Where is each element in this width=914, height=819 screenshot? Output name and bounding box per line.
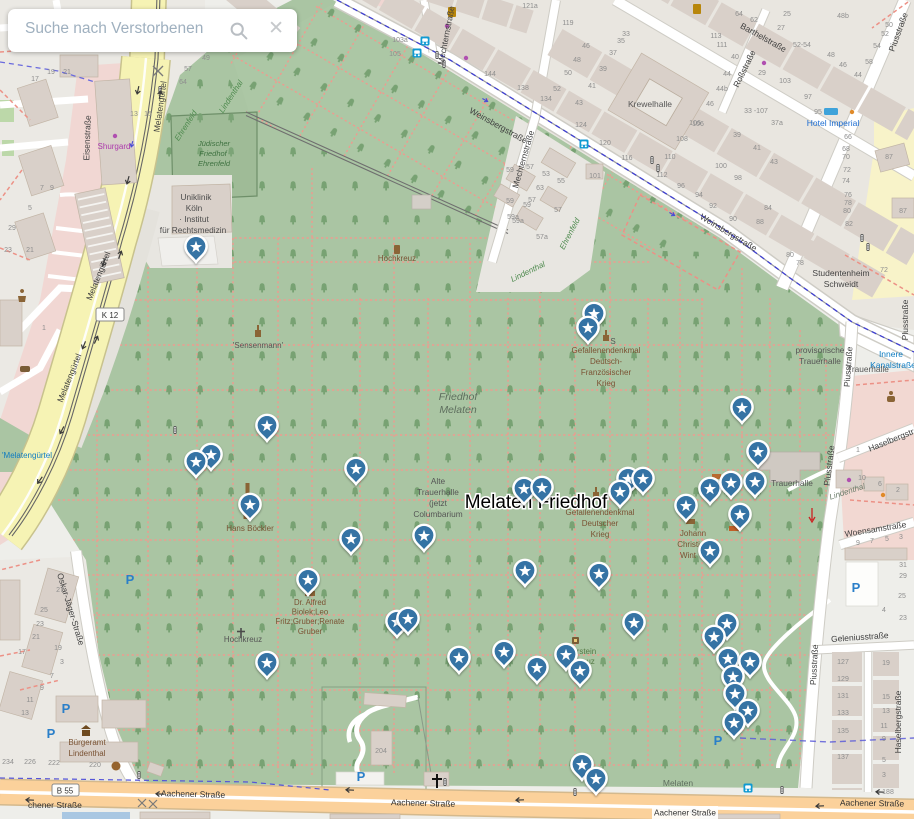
svg-text:Friedhof: Friedhof [199, 149, 227, 158]
svg-text:96: 96 [677, 183, 685, 190]
svg-text:134: 134 [540, 96, 552, 103]
svg-text:25: 25 [783, 11, 791, 18]
svg-text:46: 46 [839, 62, 847, 69]
svg-text:P: P [852, 580, 861, 595]
svg-text:78: 78 [844, 200, 852, 207]
svg-text:Hochkreuz: Hochkreuz [224, 635, 262, 644]
svg-text:P: P [62, 701, 71, 716]
svg-text:für Rechtsmedizin: für Rechtsmedizin [160, 225, 227, 235]
svg-text:57a: 57a [536, 234, 548, 241]
svg-text:100: 100 [715, 163, 727, 170]
svg-text:29: 29 [8, 225, 16, 232]
svg-text:S: S [610, 337, 615, 346]
svg-text:63: 63 [536, 185, 544, 192]
svg-text:23: 23 [36, 621, 44, 628]
svg-text:106: 106 [692, 121, 704, 128]
svg-text:P: P [714, 733, 723, 748]
svg-text:23: 23 [4, 247, 12, 254]
svg-text:P: P [126, 572, 135, 587]
svg-text:52: 52 [881, 31, 889, 38]
svg-text:68: 68 [842, 146, 850, 153]
svg-text:41: 41 [588, 83, 596, 90]
svg-text:95: 95 [814, 109, 822, 116]
svg-text:Ehrenfeld: Ehrenfeld [198, 159, 231, 168]
svg-text:64: 64 [735, 11, 743, 18]
svg-text:Biolek;Leo: Biolek;Leo [292, 608, 329, 617]
svg-text:25: 25 [40, 607, 48, 614]
svg-text:103: 103 [779, 78, 791, 85]
svg-text:9: 9 [40, 685, 44, 692]
svg-text:72: 72 [880, 267, 888, 274]
svg-text:Deutsch-: Deutsch- [590, 357, 622, 366]
svg-text:29: 29 [899, 573, 907, 580]
svg-text:74: 74 [842, 178, 850, 185]
svg-text:K 12: K 12 [102, 311, 119, 320]
svg-text:provisorische: provisorische [796, 345, 845, 355]
svg-text:55: 55 [557, 178, 565, 185]
svg-text:Bürgeramt: Bürgeramt [68, 738, 106, 747]
svg-text:54: 54 [873, 43, 881, 50]
svg-text:113: 113 [710, 33, 721, 40]
svg-text:11: 11 [26, 697, 33, 704]
svg-text:17: 17 [18, 649, 26, 656]
svg-text:133: 133 [837, 710, 849, 717]
svg-text:37a: 37a [771, 120, 783, 127]
svg-text:108: 108 [676, 136, 688, 143]
svg-text:112: 112 [656, 172, 667, 179]
svg-text:62: 62 [750, 17, 758, 24]
svg-text:48: 48 [573, 57, 581, 64]
svg-text:57: 57 [526, 164, 534, 171]
svg-text:137: 137 [837, 754, 849, 761]
svg-text:80: 80 [843, 208, 851, 215]
svg-text:5: 5 [28, 205, 32, 212]
svg-text:1: 1 [856, 447, 860, 454]
svg-text:44b: 44b [716, 86, 728, 93]
svg-text:39: 39 [733, 132, 741, 139]
svg-text:Hotel Imperial: Hotel Imperial [807, 118, 860, 128]
svg-text:70: 70 [842, 154, 850, 161]
svg-text:Aachener Straße: Aachener Straße [840, 797, 905, 808]
svg-text:21: 21 [32, 634, 40, 641]
svg-text:98: 98 [734, 175, 742, 182]
svg-text:11: 11 [880, 723, 887, 730]
svg-text:1: 1 [42, 325, 46, 332]
svg-text:Deutscher: Deutscher [582, 519, 619, 528]
svg-text:226: 226 [24, 759, 36, 766]
svg-text:33: 33 [622, 31, 630, 38]
svg-text:Columbarium: Columbarium [413, 509, 462, 519]
svg-text:13: 13 [130, 111, 138, 118]
svg-text:25: 25 [898, 593, 906, 600]
svg-text:90: 90 [729, 216, 737, 223]
svg-text:33 -107: 33 -107 [744, 108, 768, 115]
svg-text:40: 40 [731, 54, 739, 61]
svg-text:Johann: Johann [680, 529, 706, 538]
svg-text:3: 3 [899, 534, 903, 541]
svg-text:53: 53 [542, 171, 550, 178]
svg-text:103a: 103a [392, 37, 408, 44]
svg-text:88: 88 [756, 219, 764, 226]
svg-text:35: 35 [617, 38, 625, 45]
svg-text:27: 27 [777, 25, 785, 32]
svg-text:Trauerhalle: Trauerhalle [771, 478, 813, 488]
svg-text:Krieg: Krieg [597, 379, 616, 388]
svg-text:82: 82 [845, 221, 853, 228]
svg-text:57: 57 [528, 197, 536, 204]
svg-text:15: 15 [144, 111, 152, 118]
svg-text:7: 7 [870, 538, 874, 545]
svg-text:2: 2 [896, 487, 900, 494]
svg-text:6: 6 [878, 481, 882, 488]
svg-text:27: 27 [56, 587, 64, 594]
svg-text:Aachener Straße: Aachener Straße [391, 797, 456, 809]
svg-text:Plusstraße: Plusstraße [900, 299, 910, 340]
svg-text:46: 46 [706, 101, 714, 108]
svg-text:92: 92 [709, 203, 717, 210]
svg-text:5: 5 [885, 536, 889, 543]
svg-text:13: 13 [882, 708, 890, 715]
svg-text:Aachener Straße: Aachener Straße [654, 809, 716, 818]
svg-text:Trauerhalle: Trauerhalle [417, 487, 459, 497]
svg-text:49: 49 [202, 55, 210, 62]
svg-text:P: P [47, 726, 56, 741]
svg-text:Fritz;Gruber;Renate: Fritz;Gruber;Renate [276, 617, 345, 626]
svg-text:Gefallenendenkmal: Gefallenendenkmal [572, 346, 641, 355]
svg-text:3: 3 [60, 659, 64, 666]
svg-text:Haselbergstraße: Haselbergstraße [893, 690, 903, 753]
svg-text:Friedhof: Friedhof [439, 391, 479, 403]
svg-text:50: 50 [564, 70, 572, 77]
svg-text:59: 59 [506, 167, 514, 174]
svg-text:Köln: Köln [186, 203, 203, 213]
svg-text:80: 80 [786, 252, 794, 259]
svg-text:Trauerhalle: Trauerhalle [847, 364, 889, 374]
svg-text:48: 48 [827, 52, 835, 59]
svg-text:9: 9 [50, 185, 54, 192]
svg-text:87: 87 [899, 208, 907, 215]
svg-text:220: 220 [89, 762, 101, 769]
svg-text:Alte: Alte [431, 476, 446, 486]
svg-text:121a: 121a [522, 3, 538, 10]
svg-text:4: 4 [882, 607, 886, 614]
svg-text:21: 21 [26, 247, 34, 254]
svg-text:'Sensenmann': 'Sensenmann' [233, 341, 284, 350]
svg-text:10: 10 [858, 475, 866, 482]
svg-text:37: 37 [609, 50, 617, 57]
svg-text:39: 39 [599, 66, 607, 73]
svg-text:Französischer: Französischer [581, 368, 632, 377]
svg-text:87: 87 [885, 154, 893, 161]
svg-text:43: 43 [575, 100, 583, 107]
svg-text:19: 19 [882, 660, 890, 667]
svg-text:23: 23 [899, 615, 907, 622]
svg-text:9: 9 [882, 736, 886, 743]
svg-text:'Melatengürtel: 'Melatengürtel [2, 451, 52, 460]
svg-text:17: 17 [31, 76, 39, 83]
svg-text:138: 138 [517, 85, 529, 92]
svg-text:Gruber: Gruber [298, 627, 323, 636]
svg-text:204: 204 [375, 748, 387, 755]
svg-text:Shurgard: Shurgard [98, 142, 131, 151]
svg-text:19: 19 [54, 645, 62, 652]
svg-text:48b: 48b [837, 13, 849, 20]
svg-text:P: P [357, 769, 366, 784]
svg-text:43: 43 [770, 159, 778, 166]
svg-text:B 55: B 55 [57, 787, 74, 796]
svg-text:Melaten: Melaten [439, 404, 477, 416]
svg-text:Hochkreuz: Hochkreuz [378, 254, 416, 263]
svg-text:72: 72 [843, 167, 851, 174]
svg-text:21: 21 [63, 69, 71, 76]
svg-text:5: 5 [882, 757, 886, 764]
svg-text:Innere: Innere [879, 349, 903, 359]
svg-text:13: 13 [21, 710, 29, 717]
svg-text:64: 64 [179, 79, 187, 86]
svg-text:3: 3 [882, 772, 886, 779]
svg-text:50: 50 [885, 22, 893, 29]
svg-text:41: 41 [753, 145, 761, 152]
svg-text:110: 110 [664, 154, 675, 161]
svg-text:Trauerhalle: Trauerhalle [799, 356, 841, 366]
svg-text:Melaten: Melaten [663, 778, 694, 788]
svg-text:Jüdischer: Jüdischer [197, 139, 231, 148]
svg-text:94: 94 [695, 192, 703, 199]
svg-text:9: 9 [856, 540, 860, 547]
svg-text:57: 57 [554, 207, 562, 214]
svg-text:Uniklinik: Uniklinik [181, 192, 213, 202]
svg-text:31: 31 [899, 562, 907, 569]
svg-text:188: 188 [882, 789, 894, 796]
svg-text:119: 119 [562, 20, 573, 27]
svg-text:Aachener Straße: Aachener Straße [161, 788, 226, 800]
svg-text:52-54: 52-54 [793, 42, 811, 49]
svg-text:(jetzt: (jetzt [429, 498, 448, 508]
svg-text:66: 66 [844, 134, 852, 141]
svg-text:Schweidt: Schweidt [824, 279, 859, 289]
svg-text:135: 135 [837, 728, 849, 735]
svg-text:76: 76 [844, 192, 852, 199]
svg-text:19: 19 [47, 69, 55, 76]
svg-text:29: 29 [758, 70, 766, 77]
svg-text:59a: 59a [507, 214, 519, 221]
svg-text:101: 101 [589, 173, 601, 180]
svg-text:131: 131 [837, 693, 849, 700]
svg-text:7: 7 [40, 185, 44, 192]
svg-text:144: 144 [484, 71, 496, 78]
svg-text:44: 44 [854, 72, 862, 79]
svg-text:105: 105 [389, 51, 401, 58]
svg-text:Wint: Wint [680, 551, 697, 560]
svg-text:Piusstraße: Piusstraße [808, 644, 820, 685]
svg-text:Krewelhalle: Krewelhalle [628, 99, 672, 109]
svg-text:· Institut: · Institut [179, 214, 209, 224]
svg-text:127: 127 [837, 659, 849, 666]
svg-text:Krieg: Krieg [591, 530, 610, 539]
svg-text:Studentenheim: Studentenheim [812, 268, 869, 278]
svg-text:84: 84 [764, 205, 772, 212]
svg-text:124: 124 [575, 122, 587, 129]
svg-text:97: 97 [804, 94, 812, 101]
svg-text:Lindenthal: Lindenthal [69, 749, 106, 758]
svg-text:78: 78 [796, 260, 804, 267]
svg-text:120: 120 [599, 140, 611, 147]
svg-text:222: 222 [48, 760, 60, 767]
svg-text:44: 44 [723, 71, 731, 78]
svg-text:59: 59 [506, 198, 514, 205]
svg-text:Eisenstraße: Eisenstraße [81, 115, 93, 161]
svg-text:7: 7 [50, 673, 54, 680]
svg-text:234: 234 [2, 759, 14, 766]
svg-text:129: 129 [837, 676, 849, 683]
svg-text:15: 15 [882, 694, 890, 701]
svg-text:46: 46 [582, 43, 590, 50]
svg-text:57: 57 [184, 66, 192, 73]
svg-text:Dr. Alfred: Dr. Alfred [294, 598, 326, 607]
svg-text:Hans Böckler: Hans Böckler [226, 524, 274, 533]
svg-text:111: 111 [717, 42, 728, 49]
svg-text:52: 52 [553, 86, 561, 93]
svg-text:58: 58 [865, 59, 873, 66]
svg-text:chener Straße: chener Straße [28, 800, 82, 810]
svg-text:116: 116 [621, 155, 632, 162]
